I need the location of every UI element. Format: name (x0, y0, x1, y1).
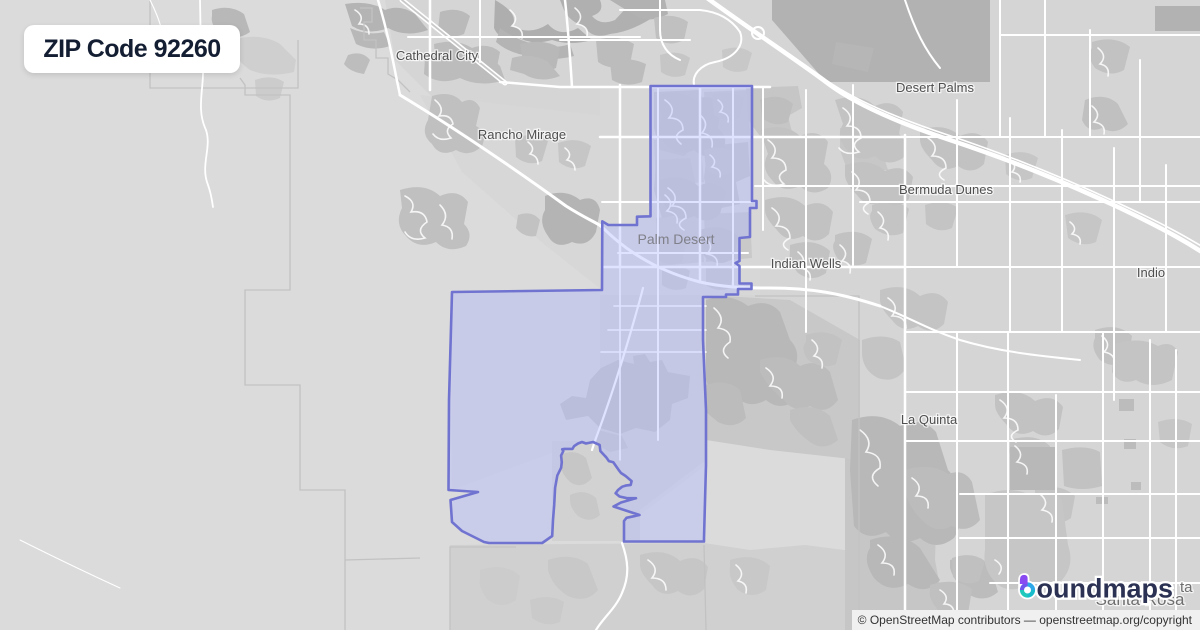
svg-text:Palm Desert: Palm Desert (637, 231, 714, 247)
svg-text:Indio: Indio (1137, 265, 1165, 280)
svg-text:La Quinta: La Quinta (901, 412, 958, 427)
svg-text:Bermuda Dunes: Bermuda Dunes (899, 182, 993, 197)
svg-text:Indian Wells: Indian Wells (771, 256, 842, 271)
svg-text:Desert Palms: Desert Palms (896, 80, 975, 95)
svg-text:oundmaps: oundmaps (1037, 574, 1174, 604)
svg-text:Cathedral City: Cathedral City (396, 48, 479, 63)
svg-text:Rancho Mirage: Rancho Mirage (478, 127, 566, 142)
